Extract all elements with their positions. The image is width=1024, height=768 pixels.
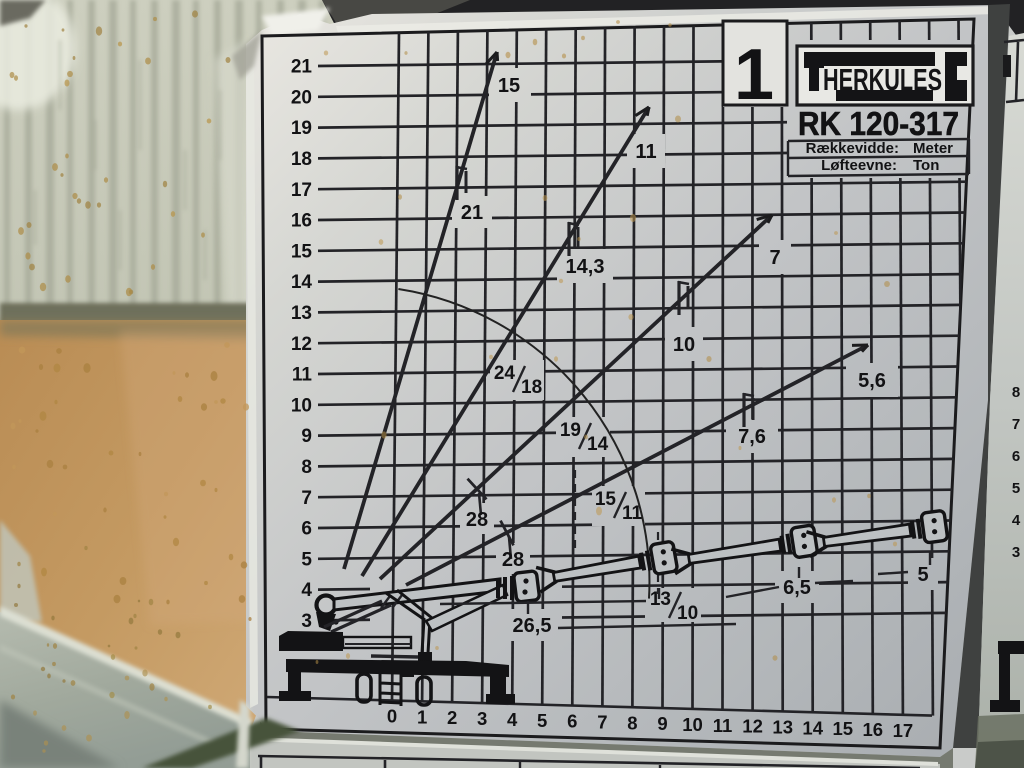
- svg-text:24: 24: [494, 363, 516, 384]
- svg-text:9: 9: [657, 713, 667, 734]
- svg-text:5: 5: [1012, 480, 1020, 497]
- svg-text:1: 1: [417, 706, 427, 727]
- svg-text:14: 14: [587, 434, 609, 455]
- svg-text:21: 21: [461, 202, 483, 224]
- svg-text:11: 11: [635, 141, 656, 163]
- svg-text:18: 18: [521, 377, 542, 398]
- svg-text:17: 17: [291, 180, 312, 201]
- svg-text:21: 21: [291, 57, 313, 78]
- svg-text:10: 10: [682, 714, 703, 735]
- svg-text:12: 12: [291, 334, 312, 355]
- svg-text:Meter: Meter: [913, 140, 953, 157]
- svg-text:7: 7: [597, 711, 607, 732]
- svg-text:HERKULES: HERKULES: [823, 62, 942, 97]
- svg-text:15: 15: [498, 75, 520, 97]
- svg-text:3: 3: [477, 708, 487, 729]
- svg-text:3: 3: [301, 611, 312, 632]
- svg-text:13: 13: [291, 303, 312, 324]
- svg-text:11: 11: [292, 365, 313, 386]
- svg-text:4: 4: [507, 709, 518, 730]
- svg-text:7: 7: [1012, 416, 1020, 433]
- svg-text:7: 7: [301, 488, 312, 509]
- svg-text:16: 16: [291, 211, 312, 232]
- svg-text:11: 11: [622, 503, 643, 524]
- svg-text:9: 9: [301, 426, 312, 447]
- svg-text:19: 19: [291, 118, 312, 139]
- svg-text:4: 4: [1012, 512, 1021, 529]
- svg-text:0: 0: [387, 706, 397, 727]
- svg-text:18: 18: [291, 149, 312, 170]
- svg-text:2: 2: [447, 707, 457, 728]
- svg-text:4: 4: [301, 580, 312, 601]
- svg-text:14: 14: [291, 272, 313, 293]
- svg-text:5: 5: [301, 549, 312, 570]
- svg-text:7: 7: [769, 247, 780, 269]
- svg-text:6: 6: [301, 519, 312, 540]
- svg-text:14,3: 14,3: [566, 256, 605, 278]
- svg-text:26,5: 26,5: [513, 615, 552, 637]
- svg-text:6: 6: [1012, 448, 1020, 465]
- svg-text:6,5: 6,5: [783, 577, 811, 599]
- svg-text:20: 20: [291, 87, 312, 108]
- svg-text:10: 10: [673, 334, 695, 356]
- svg-text:13: 13: [650, 589, 671, 610]
- svg-text:15: 15: [291, 241, 313, 262]
- svg-text:8: 8: [1012, 384, 1020, 401]
- svg-text:1: 1: [734, 35, 774, 115]
- svg-text:3: 3: [1012, 544, 1020, 561]
- svg-text:5: 5: [537, 710, 547, 731]
- svg-text:14: 14: [802, 717, 823, 738]
- svg-text:10: 10: [291, 395, 312, 416]
- svg-text:19: 19: [560, 420, 581, 441]
- svg-text:8: 8: [627, 712, 637, 733]
- svg-text:Løfteevne:: Løfteevne:: [821, 157, 897, 174]
- svg-text:Rækkevidde:: Rækkevidde:: [806, 140, 899, 157]
- svg-text:17: 17: [893, 720, 914, 741]
- svg-text:8: 8: [301, 457, 312, 478]
- svg-text:7,6: 7,6: [738, 426, 766, 448]
- svg-text:5: 5: [917, 564, 928, 586]
- svg-text:5,6: 5,6: [858, 370, 886, 392]
- svg-text:12: 12: [742, 716, 763, 737]
- svg-text:28: 28: [466, 509, 488, 531]
- svg-text:15: 15: [833, 718, 854, 739]
- svg-text:16: 16: [863, 719, 884, 740]
- svg-text:Ton: Ton: [913, 157, 939, 174]
- svg-text:RK 120-317: RK 120-317: [798, 105, 959, 142]
- svg-text:13: 13: [772, 717, 793, 738]
- svg-text:28: 28: [502, 549, 524, 571]
- svg-text:10: 10: [677, 603, 698, 624]
- svg-text:11: 11: [713, 715, 733, 736]
- svg-text:6: 6: [567, 711, 577, 732]
